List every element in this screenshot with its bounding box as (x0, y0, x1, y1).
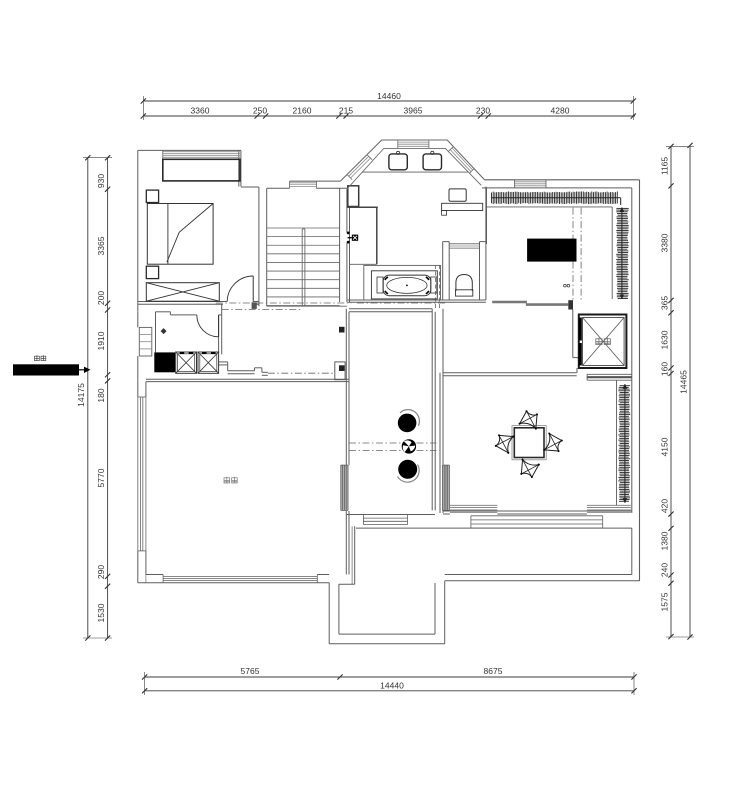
svg-text:1165: 1165 (659, 157, 669, 176)
svg-text:4280: 4280 (551, 106, 570, 116)
svg-text:930: 930 (96, 174, 106, 188)
svg-text:14460: 14460 (377, 91, 401, 101)
svg-text:8675: 8675 (484, 666, 503, 676)
svg-text:14175: 14175 (76, 383, 86, 407)
svg-text:3365: 3365 (96, 236, 106, 255)
svg-text:4150: 4150 (659, 437, 669, 456)
svg-text:1630: 1630 (659, 330, 669, 349)
svg-text:180: 180 (96, 388, 106, 402)
svg-text:1380: 1380 (659, 531, 669, 550)
svg-text:14440: 14440 (380, 681, 404, 691)
svg-text:420: 420 (659, 499, 669, 513)
svg-text:365: 365 (659, 296, 669, 310)
svg-text:3965: 3965 (404, 106, 423, 116)
svg-text:240: 240 (659, 563, 669, 577)
svg-text:14465: 14465 (679, 370, 689, 394)
svg-text:160: 160 (659, 362, 669, 376)
svg-text:5770: 5770 (96, 468, 106, 487)
svg-text:215: 215 (339, 106, 353, 116)
svg-text:2160: 2160 (293, 106, 312, 116)
svg-text:3360: 3360 (191, 106, 210, 116)
svg-text:230: 230 (476, 106, 490, 116)
svg-text:290: 290 (96, 565, 106, 579)
svg-text:5765: 5765 (241, 666, 260, 676)
svg-text:1575: 1575 (659, 592, 669, 611)
svg-text:1910: 1910 (96, 331, 106, 350)
svg-text:250: 250 (253, 106, 267, 116)
svg-text:200: 200 (96, 291, 106, 305)
svg-text:1530: 1530 (96, 603, 106, 622)
svg-text:3380: 3380 (659, 233, 669, 252)
